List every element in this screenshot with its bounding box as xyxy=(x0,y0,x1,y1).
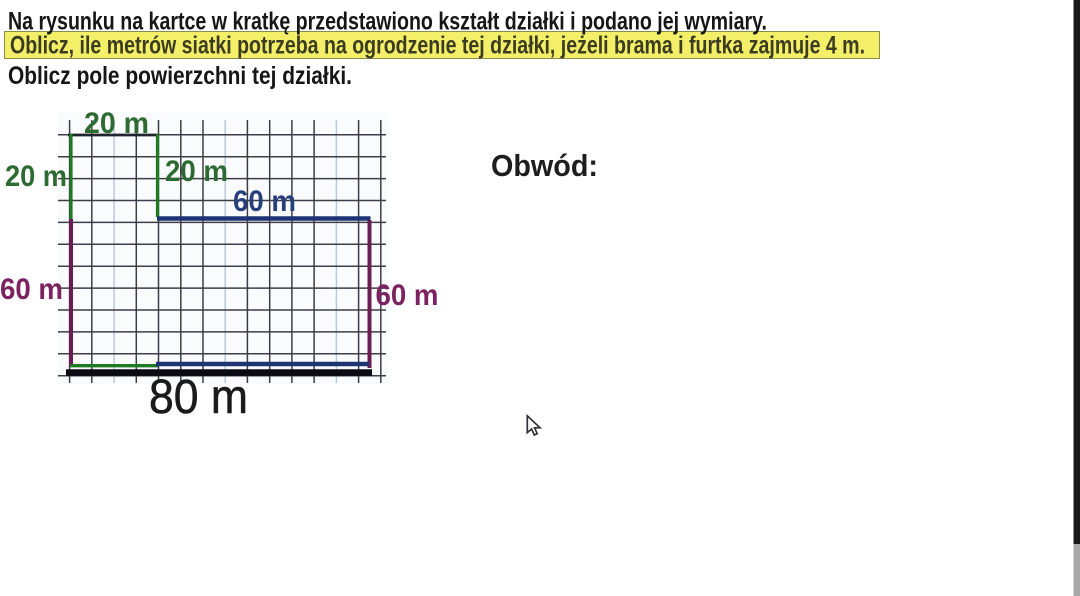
svg-text:60 m: 60 m xyxy=(0,273,63,306)
svg-text:Oblicz pole powierzchni tej dz: Oblicz pole powierzchni tej działki. xyxy=(8,62,352,90)
svg-text:20 m: 20 m xyxy=(5,160,67,193)
svg-text:20 m: 20 m xyxy=(165,155,228,188)
svg-text:60 m: 60 m xyxy=(376,279,439,312)
svg-text:60 m: 60 m xyxy=(233,185,296,218)
svg-text:20 m: 20 m xyxy=(84,107,149,140)
svg-text:Oblicz, ile metrów siatki potr: Oblicz, ile metrów siatki potrzeba na og… xyxy=(10,32,865,60)
svg-text:80 m: 80 m xyxy=(149,370,248,424)
svg-text:Obwód:: Obwód: xyxy=(491,148,598,183)
